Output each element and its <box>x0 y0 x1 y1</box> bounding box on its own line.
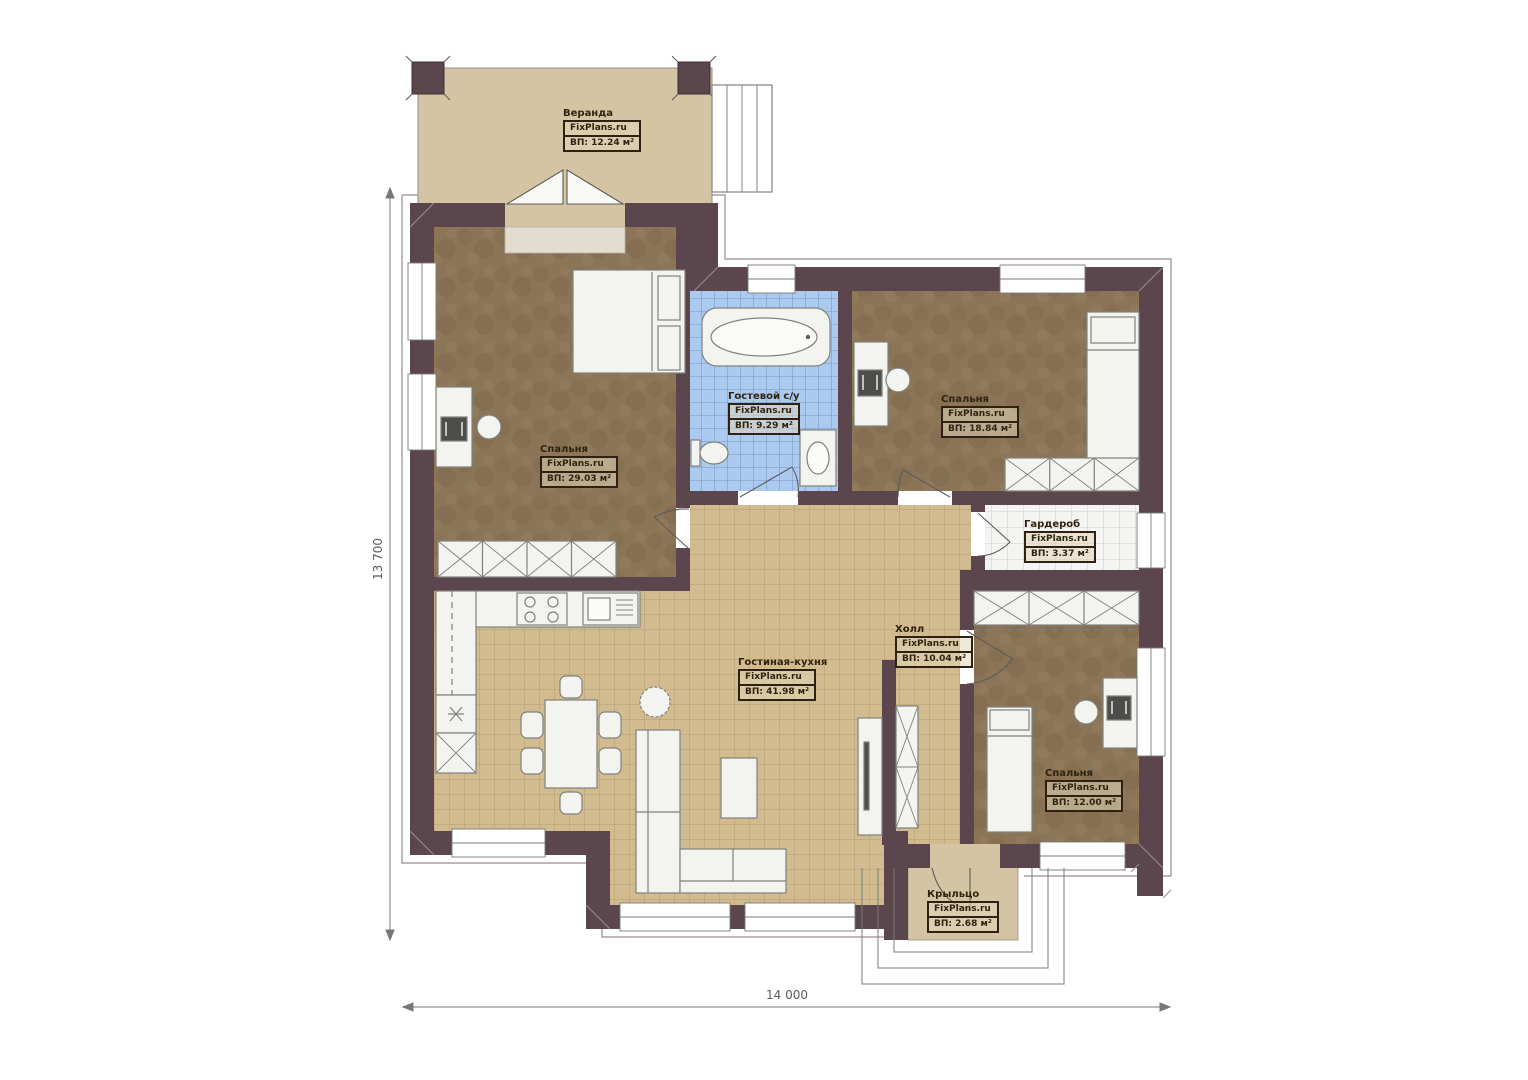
computer <box>441 417 467 441</box>
window <box>1000 265 1085 293</box>
brand-watermark: FixPlans.ru <box>565 122 639 137</box>
bed <box>573 270 685 373</box>
bed <box>987 707 1032 832</box>
room-label-bathroom: Гостевой с/у FixPlans.ru ВП: 9.29 м² <box>728 391 800 435</box>
stove <box>517 593 567 625</box>
veranda-post <box>678 62 710 94</box>
room-name: Спальня <box>941 394 1019 405</box>
floor-plan-drawing <box>0 0 1528 1080</box>
room-name: Холл <box>895 624 973 635</box>
desk <box>436 387 472 467</box>
fridge <box>436 695 476 733</box>
wardrobe <box>1005 458 1139 491</box>
floor-hall <box>690 505 971 591</box>
wall-interior <box>952 491 1139 505</box>
wall-interior <box>690 491 738 505</box>
wall-interior <box>960 684 974 845</box>
dining-chair <box>560 676 582 698</box>
window <box>408 374 436 450</box>
brand-watermark: FixPlans.ru <box>740 671 814 686</box>
wardrobe <box>974 591 1139 630</box>
wall-interior <box>852 491 898 505</box>
chair <box>477 415 501 439</box>
room-name: Гостиная-кухня <box>738 657 827 668</box>
floor-plan-page: Веранда FixPlans.ru ВП: 12.24 м² Спальня… <box>0 0 1528 1080</box>
coffee-table <box>721 758 757 818</box>
toilet <box>691 440 728 466</box>
room-info-box: FixPlans.ru ВП: 29.03 м² <box>540 456 618 488</box>
window <box>1040 842 1125 870</box>
room-name: Спальня <box>1045 768 1123 779</box>
room-area: ВП: 3.37 м² <box>1026 548 1094 561</box>
desk <box>854 342 888 426</box>
pillow <box>990 710 1029 730</box>
pillow <box>658 276 680 320</box>
brand-watermark: FixPlans.ru <box>943 408 1017 423</box>
room-label-porch: Крыльцо FixPlans.ru ВП: 2.68 м² <box>927 889 999 933</box>
brand-watermark: FixPlans.ru <box>1047 782 1121 797</box>
wall-interior <box>434 577 690 591</box>
room-area: ВП: 29.03 м² <box>542 473 616 486</box>
room-name: Гардероб <box>1024 519 1096 530</box>
wall-interior <box>838 267 852 505</box>
room-area: ВП: 10.04 м² <box>897 653 971 666</box>
window <box>748 265 795 293</box>
wall-interior <box>971 556 985 570</box>
dimension-label-width: 14 000 <box>742 988 832 1002</box>
room-name: Спальня <box>540 444 618 455</box>
room-label-wardrobe: Гардероб FixPlans.ru ВП: 3.37 м² <box>1024 519 1096 563</box>
room-info-box: FixPlans.ru ВП: 10.04 м² <box>895 636 973 668</box>
room-info-box: FixPlans.ru ВП: 12.24 м² <box>563 120 641 152</box>
brand-watermark: FixPlans.ru <box>1026 533 1094 548</box>
pillow <box>1091 317 1135 343</box>
room-area: ВП: 12.24 м² <box>565 137 639 150</box>
dimension-label-height: 13 700 <box>371 527 385 591</box>
computer <box>858 370 882 396</box>
computer <box>1107 696 1131 720</box>
wall <box>884 831 908 940</box>
wardrobe <box>438 541 616 577</box>
room-name: Гостевой с/у <box>728 391 800 402</box>
room-info-box: FixPlans.ru ВП: 18.84 м² <box>941 406 1019 438</box>
room-label-bedroom-right: Спальня FixPlans.ru ВП: 18.84 м² <box>941 394 1019 438</box>
dining-chair <box>521 748 543 774</box>
room-label-hall: Холл FixPlans.ru ВП: 10.04 м² <box>895 624 973 668</box>
room-area: ВП: 12.00 м² <box>1047 797 1121 810</box>
wall-interior <box>960 570 1139 591</box>
pillow <box>658 326 680 370</box>
wall-interior <box>971 505 985 512</box>
window <box>408 263 436 340</box>
tv-stand <box>858 718 882 835</box>
wall <box>908 844 930 868</box>
room-name: Крыльцо <box>927 889 999 900</box>
cabinet <box>436 733 476 773</box>
veranda-stairs <box>712 85 772 192</box>
bed <box>1087 312 1139 468</box>
chimney <box>1137 866 1163 896</box>
room-area: ВП: 18.84 м² <box>943 423 1017 436</box>
room-label-veranda: Веранда FixPlans.ru ВП: 12.24 м² <box>563 108 641 152</box>
dining-chair <box>521 712 543 738</box>
window <box>620 903 730 931</box>
dining-chair <box>560 792 582 814</box>
plant <box>640 687 670 717</box>
wall-interior <box>882 660 896 845</box>
tv <box>864 742 869 810</box>
room-info-box: FixPlans.ru ВП: 2.68 м² <box>927 901 999 933</box>
desk <box>1103 678 1137 748</box>
room-info-box: FixPlans.ru ВП: 12.00 м² <box>1045 780 1123 812</box>
room-info-box: FixPlans.ru ВП: 9.29 м² <box>728 403 800 435</box>
bathtub <box>702 308 830 366</box>
brand-watermark: FixPlans.ru <box>730 405 798 420</box>
dining-table <box>545 700 597 788</box>
brand-watermark: FixPlans.ru <box>929 903 997 918</box>
room-label-bedroom-small: Спальня FixPlans.ru ВП: 12.00 м² <box>1045 768 1123 812</box>
room-label-bedroom-left: Спальня FixPlans.ru ВП: 29.03 м² <box>540 444 618 488</box>
kitchen-sink <box>583 593 638 625</box>
wall <box>1000 844 1018 868</box>
room-area: ВП: 41.98 м² <box>740 686 814 699</box>
wall-interior <box>798 491 838 505</box>
room-info-box: FixPlans.ru ВП: 3.37 м² <box>1024 531 1096 563</box>
brand-watermark: FixPlans.ru <box>542 458 616 473</box>
chair <box>1074 700 1098 724</box>
veranda-post <box>412 62 444 94</box>
room-label-living-kitchen: Гостиная-кухня FixPlans.ru ВП: 41.98 м² <box>738 657 827 701</box>
dining-chair <box>599 748 621 774</box>
dining-chair <box>599 712 621 738</box>
sink <box>800 430 836 486</box>
brand-watermark: FixPlans.ru <box>897 638 971 653</box>
room-name: Веранда <box>563 108 641 119</box>
storage-cabinet <box>896 706 918 828</box>
window <box>452 829 545 857</box>
room-area: ВП: 2.68 м² <box>929 918 997 931</box>
window <box>1137 513 1165 568</box>
room-info-box: FixPlans.ru ВП: 41.98 м² <box>738 669 816 701</box>
chair <box>886 368 910 392</box>
room-area: ВП: 9.29 м² <box>730 420 798 433</box>
window <box>745 903 855 931</box>
window <box>1137 648 1165 756</box>
